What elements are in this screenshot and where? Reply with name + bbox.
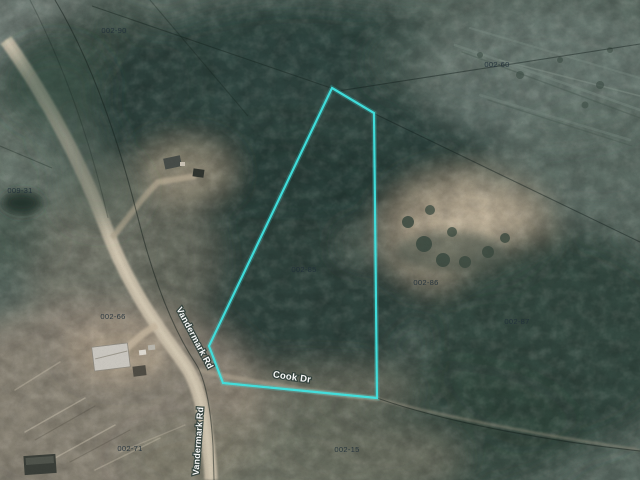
parcel-label-002-66: 002-66 [100, 312, 125, 321]
parcel-label-002-60: 002-60 [484, 60, 509, 69]
parcel-label-002-71: 002-71 [117, 444, 142, 453]
texture-grain [0, 0, 640, 480]
aerial-map[interactable]: 002-90 002-60 009-31 002-66 002-85 002-8… [0, 0, 640, 480]
parcel-label-009-31: 009-31 [7, 186, 32, 195]
parcel-label-002-15: 002-15 [334, 445, 359, 454]
parcel-label-002-90: 002-90 [101, 26, 126, 35]
parcel-label-002-85: 002-85 [291, 265, 316, 274]
parcel-label-002-87: 002-87 [504, 317, 529, 326]
map-viewport[interactable]: 002-90 002-60 009-31 002-66 002-85 002-8… [0, 0, 640, 480]
parcel-label-002-86: 002-86 [413, 278, 438, 287]
